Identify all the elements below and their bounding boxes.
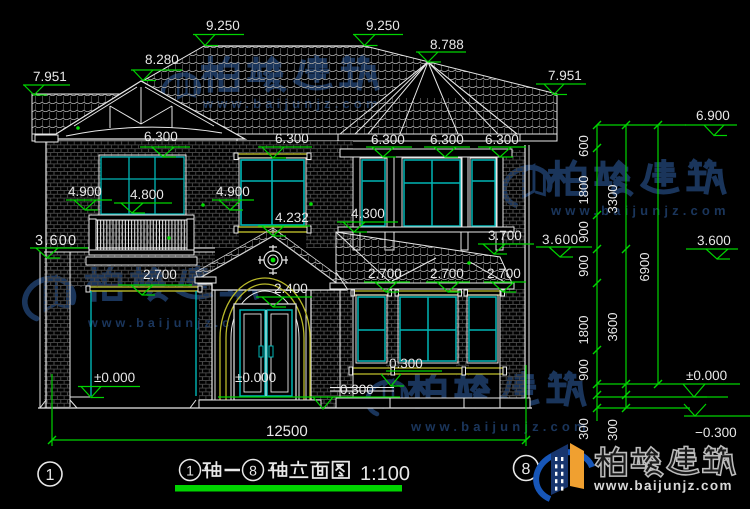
svg-text:8: 8 bbox=[522, 461, 531, 478]
svg-text:4.300: 4.300 bbox=[351, 206, 385, 221]
svg-text:6.300: 6.300 bbox=[371, 132, 405, 147]
svg-text:6.300: 6.300 bbox=[144, 129, 178, 144]
svg-text:9.250: 9.250 bbox=[366, 18, 400, 33]
svg-text:6.300: 6.300 bbox=[485, 132, 519, 147]
svg-text:1: 1 bbox=[186, 463, 194, 479]
svg-text:12500: 12500 bbox=[266, 423, 308, 440]
svg-text:300: 300 bbox=[576, 418, 591, 440]
svg-text:900: 900 bbox=[576, 255, 591, 277]
svg-text:4.800: 4.800 bbox=[130, 187, 164, 202]
svg-text:7.951: 7.951 bbox=[548, 68, 582, 83]
svg-text:±0.000: ±0.000 bbox=[235, 370, 276, 385]
svg-text:6.300: 6.300 bbox=[275, 131, 309, 146]
svg-text:4.900: 4.900 bbox=[216, 184, 250, 199]
svg-text:6.300: 6.300 bbox=[430, 132, 464, 147]
svg-text:3.600: 3.600 bbox=[35, 233, 77, 249]
svg-text:600: 600 bbox=[576, 135, 591, 157]
svg-text:2.700: 2.700 bbox=[487, 266, 521, 281]
svg-text:2.400: 2.400 bbox=[274, 281, 308, 296]
svg-text:3.600: 3.600 bbox=[542, 232, 579, 247]
svg-text:4.900: 4.900 bbox=[68, 184, 102, 199]
svg-text:4.232: 4.232 bbox=[275, 210, 309, 225]
svg-text:9.250: 9.250 bbox=[206, 18, 240, 33]
svg-text:±0.000: ±0.000 bbox=[94, 370, 135, 385]
svg-text:www.baijunjz.com: www.baijunjz.com bbox=[593, 478, 733, 493]
svg-text:2.700: 2.700 bbox=[143, 267, 177, 282]
svg-text:1800: 1800 bbox=[576, 316, 591, 345]
svg-text:3600: 3600 bbox=[605, 313, 620, 342]
svg-text:8: 8 bbox=[249, 463, 257, 479]
svg-text:1:100: 1:100 bbox=[360, 463, 410, 485]
svg-text:8.280: 8.280 bbox=[145, 52, 179, 67]
svg-text:3300: 3300 bbox=[605, 185, 620, 214]
svg-text:1800: 1800 bbox=[576, 176, 591, 205]
svg-text:3.600: 3.600 bbox=[697, 233, 731, 248]
svg-text:8.788: 8.788 bbox=[430, 37, 464, 52]
svg-text:3.700: 3.700 bbox=[488, 228, 522, 243]
svg-text:900: 900 bbox=[576, 359, 591, 381]
svg-text:±0.000: ±0.000 bbox=[686, 368, 727, 383]
svg-text:1: 1 bbox=[46, 467, 55, 484]
svg-text:0.300: 0.300 bbox=[340, 382, 374, 397]
svg-text:7.951: 7.951 bbox=[33, 69, 67, 84]
svg-text:0.300: 0.300 bbox=[389, 356, 423, 371]
svg-text:6900: 6900 bbox=[637, 253, 652, 282]
svg-text:300: 300 bbox=[605, 419, 620, 441]
svg-text:6.900: 6.900 bbox=[696, 108, 730, 123]
svg-text:www.baijunjz.com: www.baijunjz.com bbox=[410, 419, 590, 434]
svg-text:900: 900 bbox=[576, 221, 591, 243]
svg-text:2.700: 2.700 bbox=[368, 266, 402, 281]
svg-text:−0.300: −0.300 bbox=[695, 425, 737, 440]
svg-text:2.700: 2.700 bbox=[430, 266, 464, 281]
